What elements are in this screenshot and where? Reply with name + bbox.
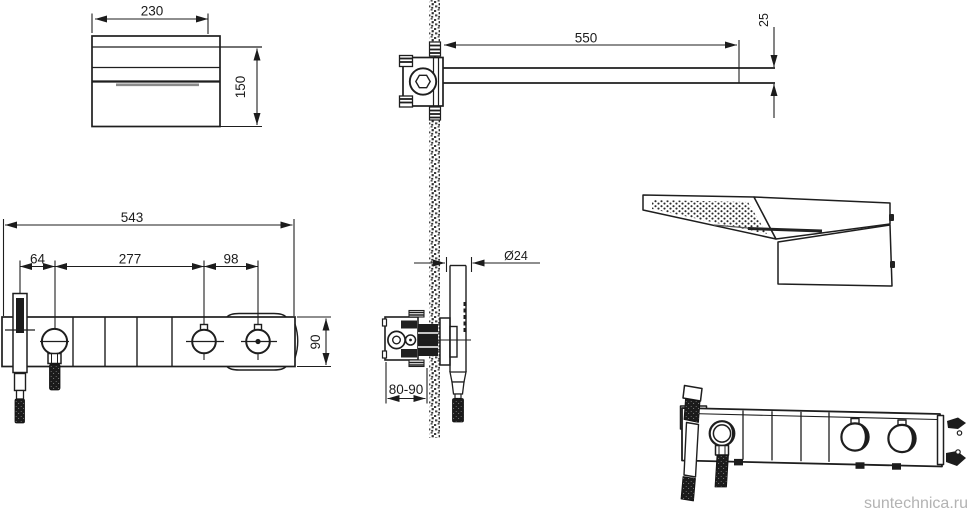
dim-label-head-width: 230 (141, 4, 164, 19)
mounting-clamp-3d (938, 416, 967, 467)
dim-label-knob-span: 277 (119, 252, 142, 267)
dim-550 (444, 40, 739, 83)
dim-label-rough-in-depth: 80-90 (389, 382, 424, 397)
dim-label-panel-width: 543 (121, 210, 144, 225)
dim-label-arm-thickness: 25 (757, 13, 771, 27)
hand-shower-holder (440, 318, 450, 365)
arm-wall-section-view: 550 25 (400, 13, 776, 120)
watermark: suntechnica.ru (864, 495, 968, 512)
shower-system-technical-drawing: 230 150 (0, 0, 970, 516)
dim-label-handshower-offset: 64 (30, 252, 46, 267)
dim-label-head-height: 150 (233, 76, 248, 99)
diverter-lever (50, 364, 61, 390)
panel-perspective-view (681, 386, 967, 502)
hand-shower-grip (15, 399, 25, 423)
dim-label-arm-length: 550 (575, 31, 598, 46)
dim-label-panel-height: 90 (308, 334, 323, 349)
mount-screw-circle (410, 68, 436, 94)
hand-shower-hose-end (453, 399, 464, 423)
panel-front-view: 543 64 277 98 90 (2, 210, 331, 423)
shower-head-perspective-view (640, 193, 895, 286)
valve-wall-section-view: Ø24 80-90 (383, 249, 541, 422)
arm-wall-mount (400, 42, 444, 120)
dim-label-handle-diameter: Ø24 (504, 249, 528, 263)
dim-label-right-knob-offset: 98 (223, 252, 238, 267)
head-side-view: 230 150 (92, 4, 262, 127)
dim-543 (4, 219, 295, 316)
diverter-lever-3d (715, 455, 729, 487)
